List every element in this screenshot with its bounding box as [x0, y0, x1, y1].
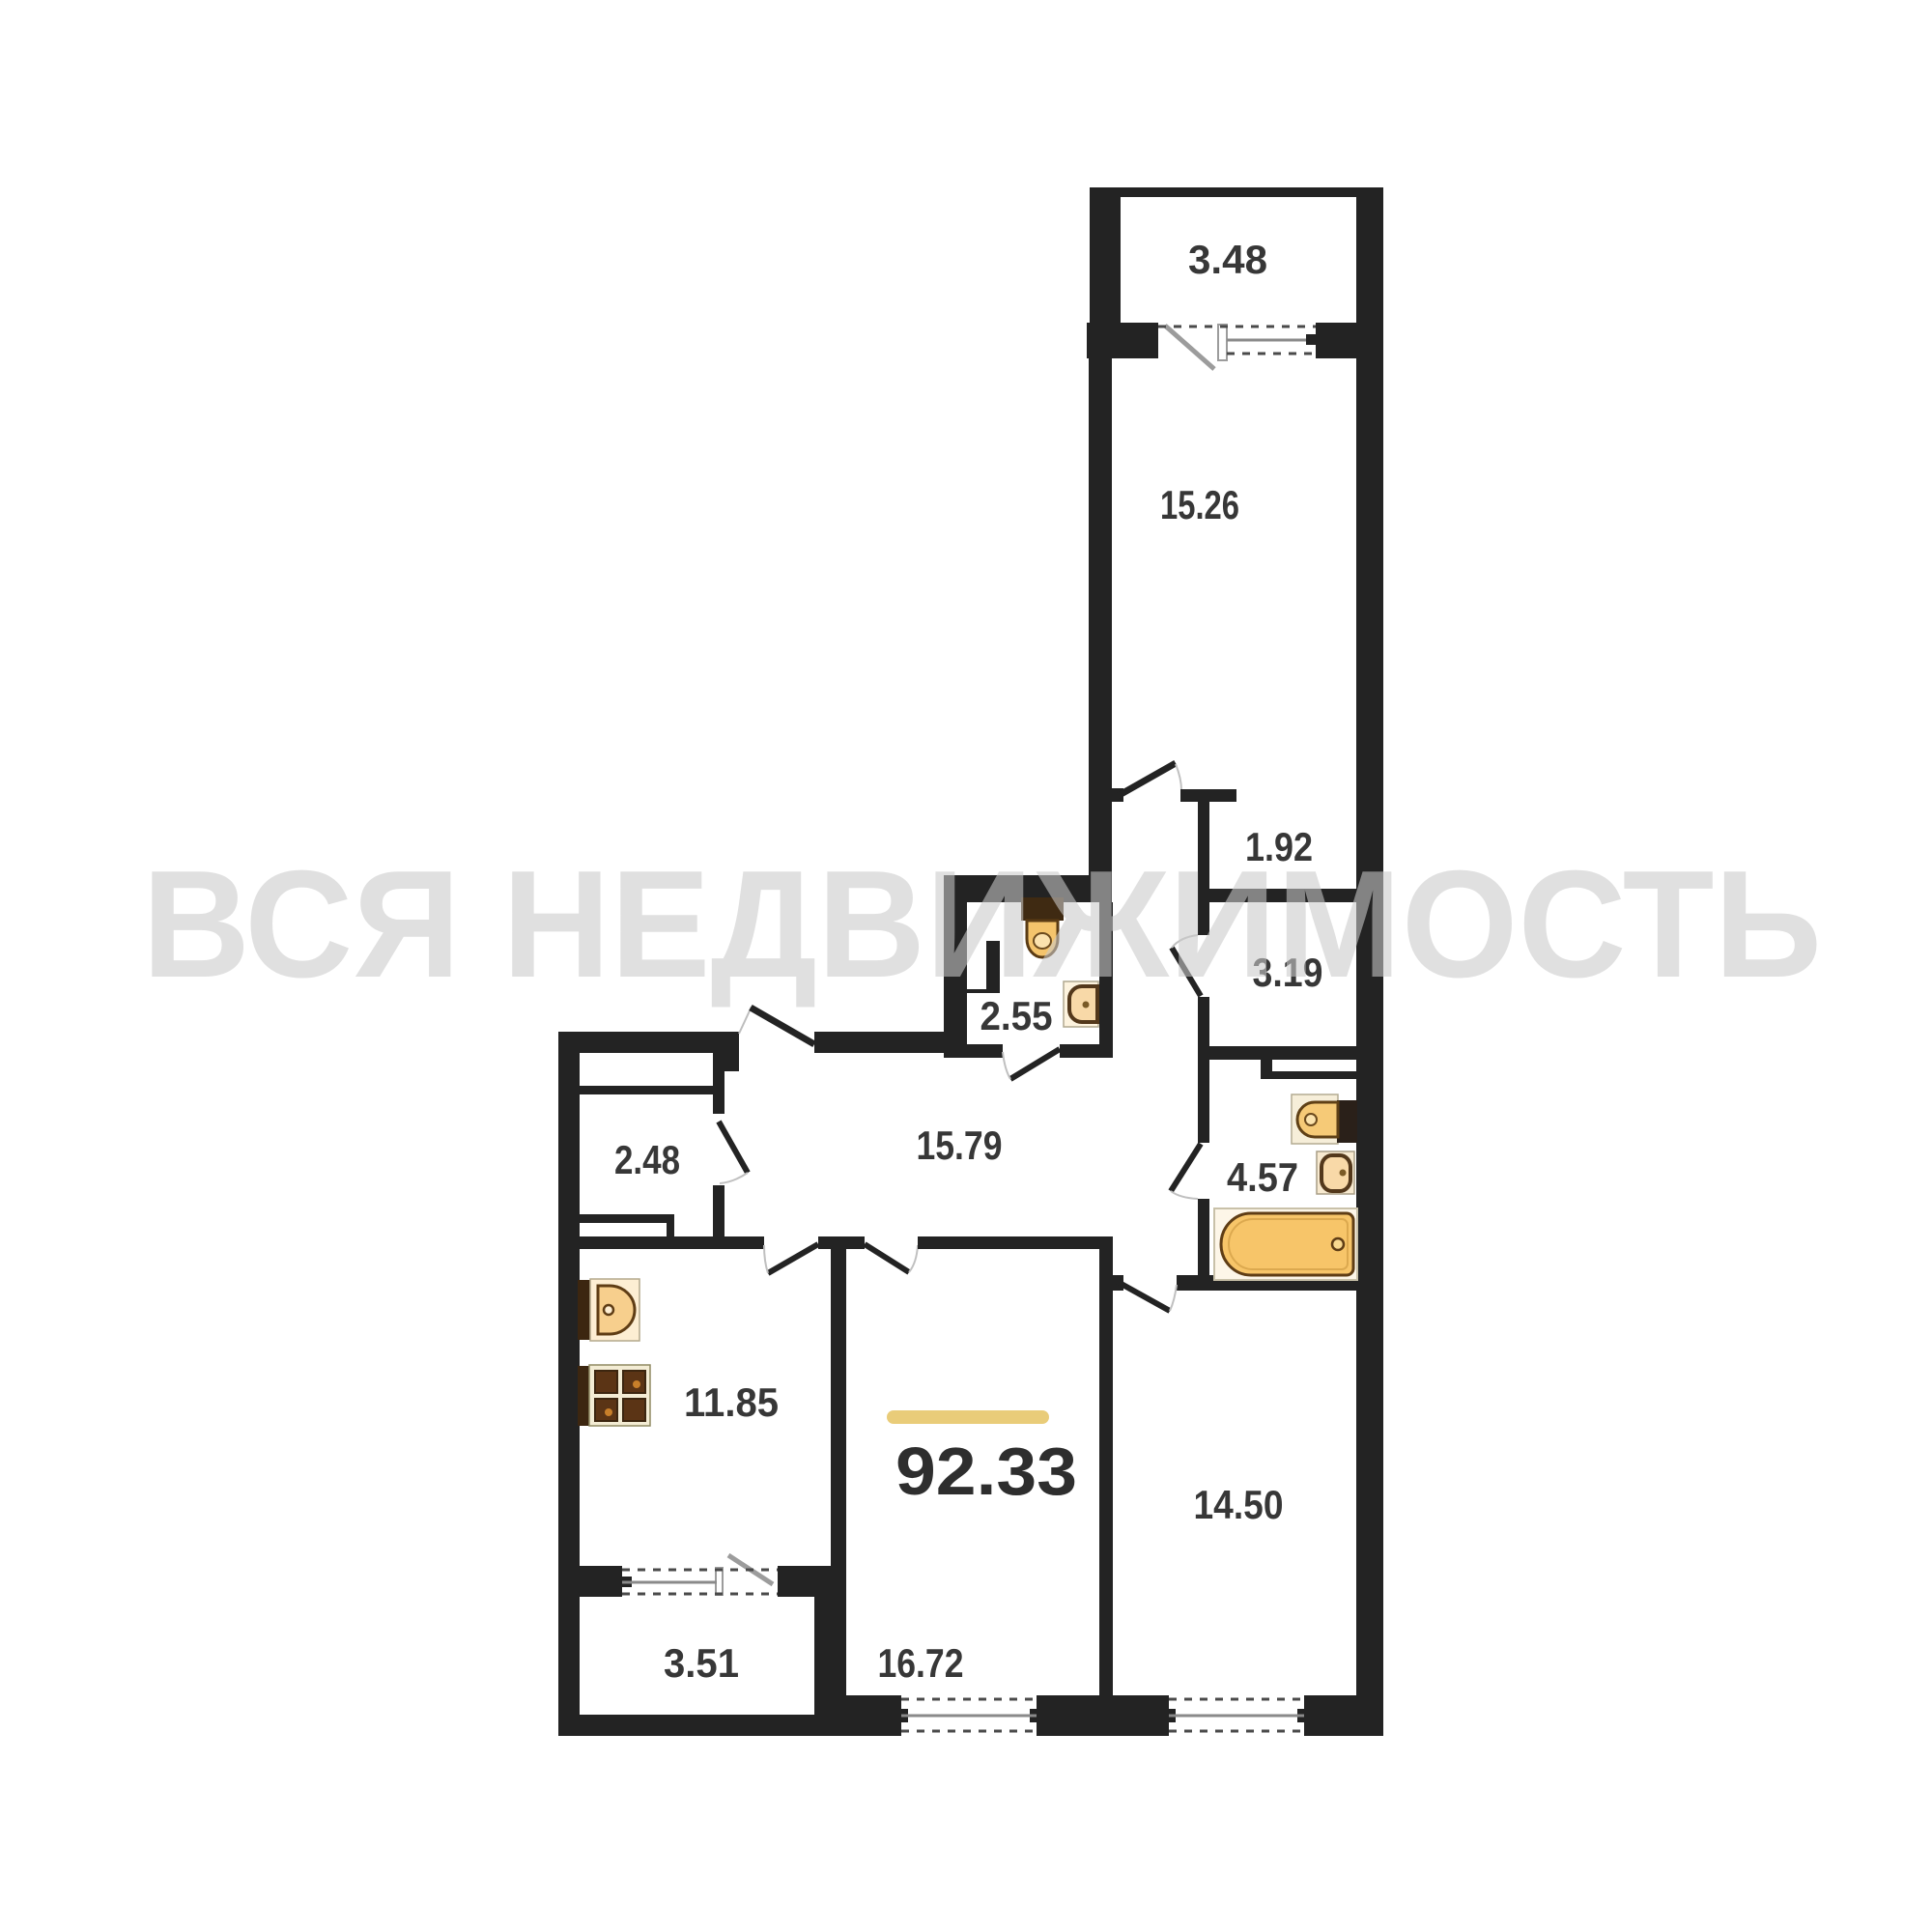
- svg-text:ВСЯ НЕДВИЖИМОСТЬ: ВСЯ НЕДВИЖИМОСТЬ: [142, 839, 1822, 1009]
- svg-text:4.57: 4.57: [1227, 1154, 1298, 1200]
- svg-text:3.51: 3.51: [664, 1640, 739, 1686]
- svg-text:92.33: 92.33: [895, 1434, 1077, 1509]
- svg-text:16.72: 16.72: [878, 1640, 964, 1686]
- svg-text:14.50: 14.50: [1194, 1482, 1284, 1527]
- svg-text:11.85: 11.85: [684, 1379, 779, 1425]
- svg-text:2.48: 2.48: [614, 1137, 680, 1182]
- svg-text:15.79: 15.79: [917, 1122, 1003, 1168]
- svg-text:15.26: 15.26: [1160, 482, 1239, 527]
- svg-text:3.48: 3.48: [1188, 237, 1267, 282]
